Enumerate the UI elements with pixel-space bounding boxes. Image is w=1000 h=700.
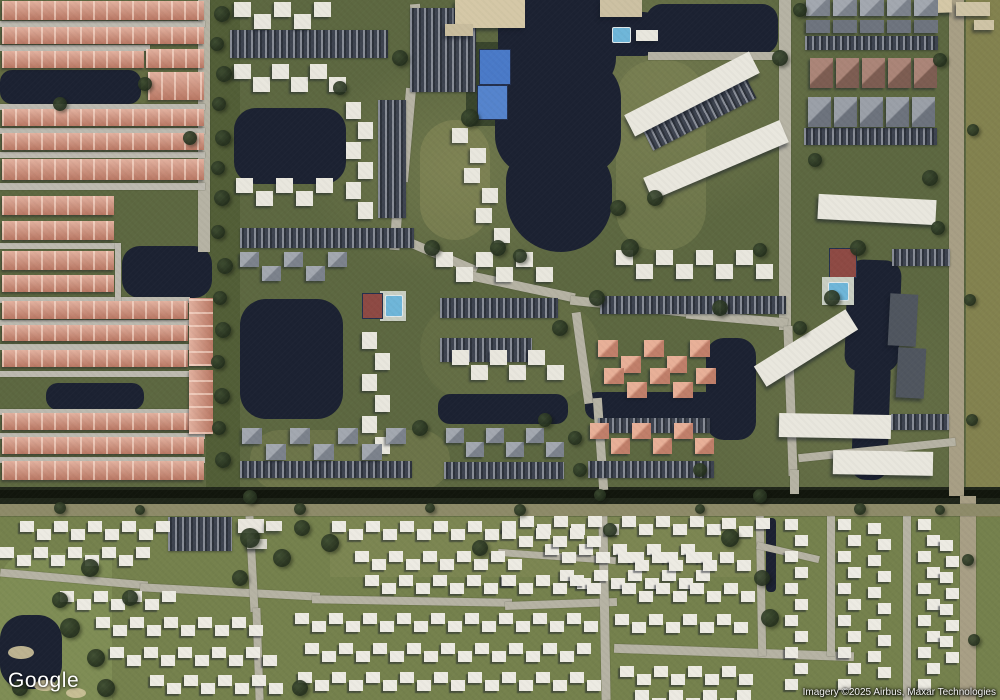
tree xyxy=(212,421,226,435)
tree xyxy=(183,131,197,145)
tree xyxy=(273,549,291,567)
tree xyxy=(60,618,80,638)
tree xyxy=(754,570,770,586)
tree xyxy=(761,609,779,627)
tree xyxy=(793,3,807,17)
tree xyxy=(721,529,739,547)
screen: { "app": {"name": "satellite-map-view", … xyxy=(0,0,1000,700)
tree xyxy=(753,243,767,257)
tree xyxy=(610,200,626,216)
google-logo[interactable]: Google xyxy=(8,669,79,693)
tree xyxy=(424,240,440,256)
tree xyxy=(214,6,230,22)
tree xyxy=(294,503,306,515)
tree xyxy=(538,413,552,427)
tree xyxy=(964,294,976,306)
tree xyxy=(647,190,663,206)
tree xyxy=(138,77,152,91)
tree xyxy=(461,109,479,127)
tree xyxy=(210,37,224,51)
tree xyxy=(568,431,582,445)
tree xyxy=(962,554,974,566)
tree xyxy=(217,258,233,274)
tree xyxy=(216,66,232,82)
tree xyxy=(214,388,230,404)
tree xyxy=(772,50,788,66)
tree xyxy=(213,291,227,305)
tree xyxy=(753,489,767,503)
tree xyxy=(135,505,145,515)
trees-layer xyxy=(0,0,1000,700)
tree xyxy=(922,170,938,186)
tree xyxy=(695,504,705,514)
tree xyxy=(933,53,947,67)
tree xyxy=(392,50,408,66)
tree xyxy=(321,534,339,552)
tree xyxy=(412,420,428,436)
map-canvas[interactable]: Google Imagery ©2025 Airbus, Maxar Techn… xyxy=(0,0,1000,700)
tree xyxy=(122,590,138,606)
tree xyxy=(211,225,225,239)
tree xyxy=(935,505,945,515)
tree xyxy=(712,300,728,316)
tree xyxy=(81,559,99,577)
tree xyxy=(243,490,257,504)
tree xyxy=(589,290,605,306)
tree xyxy=(966,414,978,426)
tree xyxy=(931,221,945,235)
tree xyxy=(552,320,568,336)
tree xyxy=(211,161,225,175)
tree xyxy=(808,153,822,167)
tree xyxy=(211,355,225,369)
tree xyxy=(850,240,866,256)
tree xyxy=(513,249,527,263)
tree xyxy=(333,81,347,95)
imagery-attribution: Imagery ©2025 Airbus, Maxar Technologies xyxy=(803,687,996,698)
tree xyxy=(232,570,248,586)
tree xyxy=(52,592,68,608)
tree xyxy=(967,124,979,136)
tree xyxy=(215,322,231,338)
tree xyxy=(54,502,66,514)
tree xyxy=(793,321,807,335)
tree xyxy=(514,504,526,516)
tree xyxy=(824,290,840,306)
tree xyxy=(215,452,231,468)
tree xyxy=(425,503,435,513)
tree xyxy=(214,190,230,206)
tree xyxy=(294,520,310,536)
tree xyxy=(573,463,587,477)
tree xyxy=(53,97,67,111)
tree xyxy=(215,130,231,146)
tree xyxy=(693,463,707,477)
tree xyxy=(490,240,506,256)
tree xyxy=(621,239,639,257)
tree xyxy=(603,523,617,537)
tree xyxy=(87,649,105,667)
tree xyxy=(212,97,226,111)
tree xyxy=(594,489,606,501)
tree xyxy=(97,679,115,697)
tree xyxy=(240,528,260,548)
tree xyxy=(968,634,980,646)
tree xyxy=(854,503,866,515)
tree xyxy=(292,680,308,696)
tree xyxy=(472,540,488,556)
